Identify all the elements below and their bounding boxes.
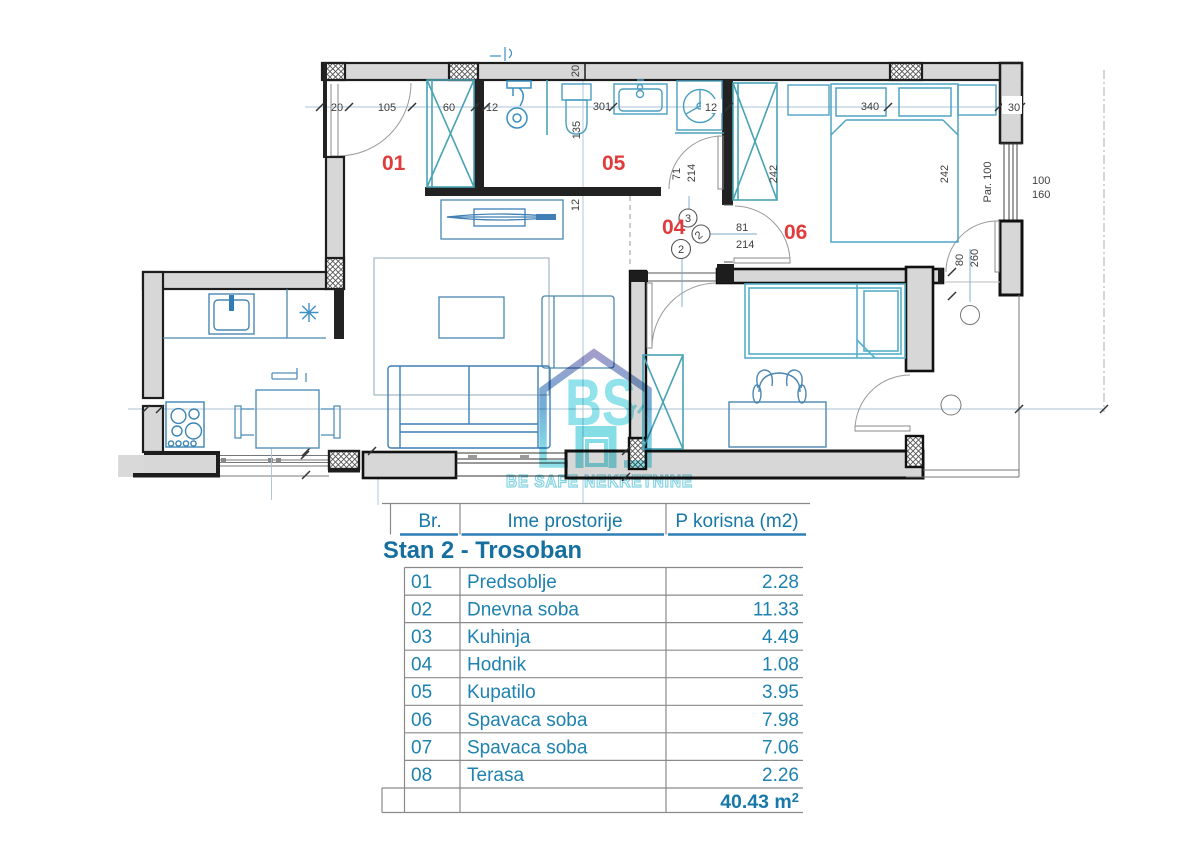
svg-text:03: 03 [411,627,432,648]
svg-text:340: 340 [861,101,879,113]
svg-text:135: 135 [571,121,583,139]
svg-text:2: 2 [678,244,684,256]
svg-text:Spavaca soba: Spavaca soba [467,710,588,731]
svg-text:7.06: 7.06 [762,737,799,758]
svg-text:Kuhinja: Kuhinja [467,627,531,648]
svg-text:12: 12 [486,102,498,114]
svg-text:71: 71 [671,168,683,180]
svg-text:Hodnik: Hodnik [467,655,527,676]
svg-text:11.33: 11.33 [753,600,799,621]
svg-text:01: 01 [411,572,432,593]
svg-text:05: 05 [602,152,626,175]
svg-text:1.08: 1.08 [762,655,799,676]
svg-text:40.43 m2: 40.43 m2 [720,790,799,813]
svg-text:30: 30 [1008,102,1020,114]
svg-text:105: 105 [378,102,396,114]
svg-text:02: 02 [411,600,432,621]
svg-text:Predsoblje: Predsoblje [467,572,557,593]
svg-text:06: 06 [411,710,432,731]
svg-text:Ime prostorije: Ime prostorije [507,511,622,532]
svg-text:Kupatilo: Kupatilo [467,682,536,703]
svg-text:60: 60 [443,102,455,114]
svg-text:301: 301 [593,101,611,113]
svg-text:Dnevna soba: Dnevna soba [467,600,579,621]
svg-text:20: 20 [570,65,582,77]
svg-text:81: 81 [736,222,748,234]
svg-text:Terasa: Terasa [467,765,524,786]
svg-text:4.49: 4.49 [762,627,799,648]
svg-text:2.28: 2.28 [762,572,799,593]
svg-text:20: 20 [331,102,343,114]
svg-text:Stan 2 - Trosoban: Stan 2 - Trosoban [383,537,582,564]
svg-text:80: 80 [954,254,966,266]
svg-text:214: 214 [686,164,698,182]
svg-text:08: 08 [411,765,432,786]
svg-text:06: 06 [784,221,807,244]
svg-text:3: 3 [685,213,691,225]
svg-text:242: 242 [939,165,951,183]
svg-text:7.98: 7.98 [762,710,799,731]
svg-text:2.26: 2.26 [762,765,799,786]
svg-text:01: 01 [382,152,406,175]
svg-text:242: 242 [768,165,780,183]
svg-text:214: 214 [736,239,754,251]
svg-text:3.95: 3.95 [762,682,799,703]
svg-text:260: 260 [969,249,981,267]
svg-text:Par. 100: Par. 100 [982,162,994,203]
svg-text:BE SAFE NEKRETNINE: BE SAFE NEKRETNINE [506,471,693,491]
svg-text:100: 100 [1032,175,1050,187]
svg-text:12: 12 [705,102,717,114]
svg-text:04: 04 [662,216,686,239]
svg-text:12: 12 [570,199,582,211]
svg-text:Br.: Br. [418,511,441,532]
svg-text:160: 160 [1032,189,1050,201]
svg-text:05: 05 [411,682,432,703]
svg-text:04: 04 [411,655,433,676]
svg-text:Spavaca soba: Spavaca soba [467,737,588,758]
svg-text:07: 07 [411,737,432,758]
svg-text:P korisna (m2): P korisna (m2) [675,511,798,532]
